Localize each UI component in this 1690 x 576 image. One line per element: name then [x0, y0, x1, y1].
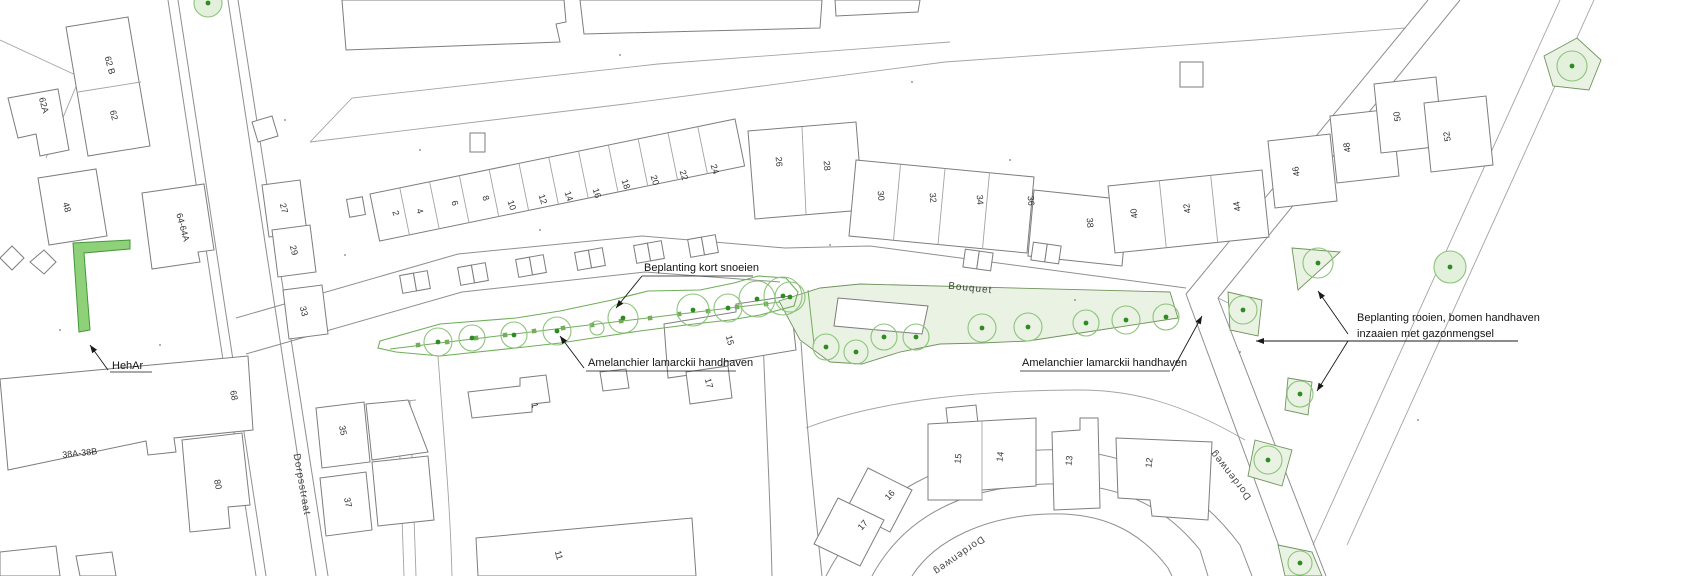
- building-outline: [0, 246, 24, 270]
- house-number: 40: [1128, 208, 1140, 220]
- house-number: 34: [975, 194, 986, 205]
- building-outline: [366, 400, 428, 460]
- house-number: 44: [1231, 201, 1243, 213]
- house-number: 42: [1181, 203, 1193, 215]
- annotation-hedge: HehAr: [112, 360, 144, 372]
- house-number: 26: [774, 156, 785, 167]
- tree-symbol: [608, 303, 638, 333]
- buildings: [0, 0, 1493, 576]
- hedge-strip: [73, 240, 130, 332]
- side-road-edges: [763, 338, 822, 576]
- house-number: 38: [1085, 217, 1096, 228]
- annotation-prune: Beplanting kort snoeien: [644, 262, 759, 274]
- street-dordenweg-lower: Dordenweg: [931, 533, 987, 576]
- house-number: 46: [1290, 166, 1302, 178]
- building-outline: [580, 0, 822, 34]
- house-number: 68: [228, 389, 240, 401]
- annotation-amelanchier-west: Amelanchier lamarckii handhaven: [588, 357, 753, 369]
- building-52: [1424, 96, 1493, 172]
- building-1: [468, 375, 550, 418]
- terrace-row-north: [370, 119, 745, 241]
- building-62b: [66, 17, 150, 156]
- survey-dots: [59, 54, 1419, 459]
- building-13: [1052, 418, 1100, 510]
- building-outline: [600, 369, 629, 391]
- building-outline: [342, 0, 566, 50]
- annotation-remove-line1: Beplanting rooien, bomen handhaven: [1357, 312, 1540, 324]
- street-dordenweg-upper: Dordenweg: [1208, 447, 1254, 501]
- building-outline: [835, 0, 920, 16]
- building-outline: [76, 552, 116, 576]
- plan-canvas: Beplanting kort snoeien Amelanchier lama…: [0, 0, 1690, 576]
- house-number: 50: [1391, 111, 1403, 123]
- site-plan: Beplanting kort snoeien Amelanchier lama…: [0, 0, 1690, 576]
- building-outline: [252, 116, 278, 142]
- tree-symbol: [194, 0, 222, 17]
- house-number: 35: [337, 424, 349, 436]
- house-number: 15: [952, 453, 963, 464]
- building-46: [1268, 134, 1337, 208]
- house-number: 48: [1341, 142, 1353, 154]
- house-number: 30: [876, 190, 887, 201]
- building-outline: [30, 250, 56, 274]
- tree-symbol: [590, 321, 604, 335]
- dordenweg-edges: [1186, 294, 1326, 576]
- building-outline: [0, 546, 60, 576]
- house-number: 32: [928, 192, 939, 203]
- building-outline: [372, 456, 434, 526]
- tree-symbol: [543, 317, 571, 345]
- tree-symbol: [1557, 51, 1587, 81]
- house-number: 80: [212, 478, 224, 490]
- planting-patch: [1292, 248, 1340, 290]
- building-11: [476, 518, 696, 576]
- house-number: 12: [1143, 457, 1154, 468]
- house-number: 14: [994, 451, 1005, 462]
- building-outline: [1180, 62, 1203, 87]
- shed-building: [470, 133, 485, 152]
- house-number: 28: [822, 160, 833, 171]
- house-number: 52: [1441, 131, 1453, 143]
- annotation-amelanchier-east: Amelanchier lamarckii handhaven: [1022, 357, 1187, 369]
- street-dorpsstraat: Dorpsstraat: [291, 453, 313, 517]
- house-number: 36: [1026, 195, 1037, 206]
- annotation-remove-line2: inzaaien met gazonmengsel: [1357, 328, 1494, 340]
- building-12: [1116, 438, 1212, 520]
- house-number: 13: [1063, 455, 1074, 466]
- tree-symbol: [1434, 251, 1466, 283]
- house-number: 37: [342, 496, 354, 508]
